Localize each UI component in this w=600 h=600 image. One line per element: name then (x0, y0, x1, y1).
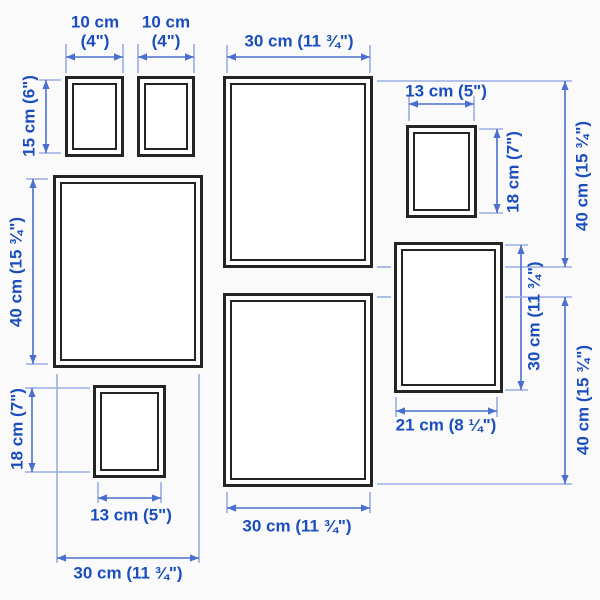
frame-10x15-top-left (65, 76, 124, 157)
frame-30x40-top (223, 76, 373, 268)
dim-width-13cm-bottom-label: 13 cm (5") (90, 507, 172, 526)
dim-height-30cm-right-label: 30 cm (11 ¾") (526, 261, 545, 370)
frame-dimension-diagram: 10 cm (4")10 cm (4")30 cm (11 ¾")15 cm (… (0, 0, 600, 600)
dim-width-30cm-bottom-middle-lines (227, 492, 370, 513)
dim-height-18cm-bottom-left-lines (25, 388, 90, 472)
frame-10x15-top-left-inner-moulding (72, 83, 117, 150)
frame-30x40-left (53, 175, 203, 368)
frame-30x40-left-inner-moulding (60, 182, 196, 361)
frame-13x18-bottom-inner-moulding (100, 392, 159, 471)
frame-30x40-bottom (223, 293, 373, 487)
frame-21x30-right-inner-moulding (401, 249, 496, 386)
dim-width-30cm-bottom-middle-label: 30 cm (11 ¾") (242, 518, 351, 537)
dim-width-13cm-top-label: 13 cm (5") (405, 83, 487, 102)
frame-13x18-bottom (93, 385, 166, 478)
frame-30x40-top-inner-moulding (230, 83, 366, 261)
dim-height-40cm-left-lines (26, 179, 48, 364)
frame-30x40-bottom-inner-moulding (230, 300, 366, 480)
dim-height-40cm-bottom-right-label: 40 cm (15 ¾") (575, 345, 594, 455)
frame-13x18-right (406, 125, 477, 218)
dim-width-13cm-bottom-lines (98, 482, 161, 503)
dim-width-30cm-bottom-left-label: 30 cm (11 ¾") (73, 565, 182, 584)
dim-width-21cm-label: 21 cm (8 ¼") (396, 417, 497, 436)
dim-height-18cm-right-label: 18 cm (7") (505, 131, 524, 213)
dim-height-40cm-left-label: 40 cm (15 ¾") (8, 217, 27, 327)
dim-height-15cm-label: 15 cm (6") (21, 75, 40, 157)
dim-height-40cm-top-right-label: 40 cm (15 ¾") (574, 121, 593, 231)
frame-21x30-right (394, 242, 503, 393)
dim-width-30cm-top-label: 30 cm (11 ¾") (244, 33, 353, 52)
frame-13x18-right-inner-moulding (413, 132, 470, 211)
dim-width-21cm-lines (396, 397, 497, 417)
frame-10x15-top-right-inner-moulding (144, 83, 188, 150)
dim-width-10cm-b-label: 10 cm (4") (142, 13, 190, 50)
dim-height-15cm-lines (39, 80, 61, 153)
dim-height-18cm-right-lines (479, 129, 503, 213)
frame-10x15-top-right (137, 76, 195, 157)
dim-height-18cm-bottom-left-label: 18 cm (7") (9, 388, 28, 470)
dim-width-10cm-a-label: 10 cm (4") (71, 13, 119, 50)
